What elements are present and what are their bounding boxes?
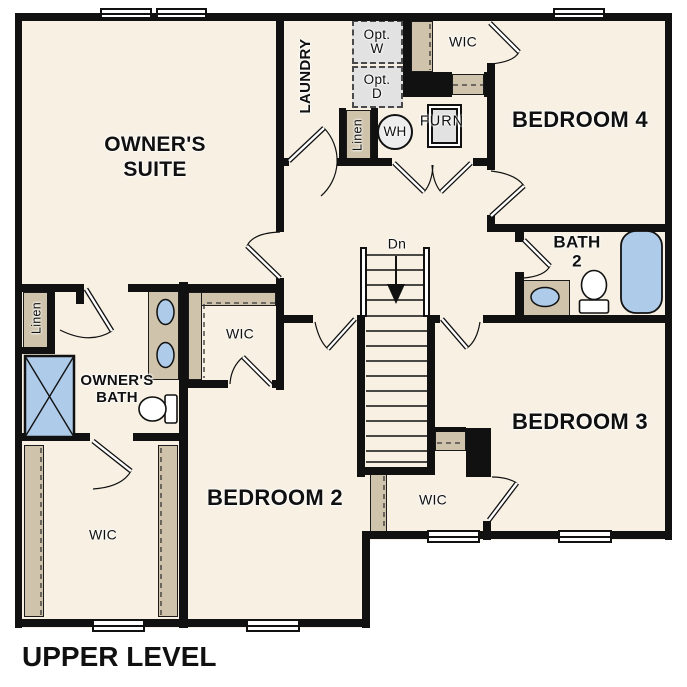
door-leaves: [86, 23, 550, 520]
door-swing-arcs: [60, 52, 550, 489]
room-label-owners-suite: OWNER'SSUITE: [104, 133, 206, 183]
label-stairs-down: Dn: [388, 236, 407, 253]
room-label-bath2: BATH2: [553, 233, 600, 270]
room-label-wic-bedroom4: WIC: [449, 34, 477, 51]
room-label-wic-bedroom3: WIC: [419, 492, 447, 509]
label-furnace: FURN: [420, 113, 464, 130]
stair-down-arrow: [387, 256, 405, 304]
room-label-wic-bedroom2: WIC: [226, 326, 254, 343]
shower: [25, 356, 74, 437]
room-label-bedroom3: BEDROOM 3: [512, 409, 648, 435]
room-label-bedroom4: BEDROOM 4: [512, 107, 648, 133]
sinks: [157, 288, 559, 368]
sink: [531, 288, 559, 307]
sink: [157, 300, 174, 325]
label-linen-laundry: Linen: [351, 119, 366, 151]
label-opt-dryer: Opt.D: [364, 73, 391, 101]
floor-plan: OWNER'SSUITE LAUNDRY Opt.W Opt.D Linen W…: [0, 0, 687, 687]
plan-graphics: [0, 0, 687, 687]
label-linen-owners: Linen: [30, 302, 45, 334]
label-opt-washer: Opt.W: [364, 28, 391, 56]
bathtub: [621, 231, 662, 313]
room-label-bedroom2: BEDROOM 2: [207, 485, 343, 511]
sink: [157, 343, 174, 368]
room-label-laundry: LAUNDRY: [297, 39, 315, 114]
room-label-wic-owners: WIC: [89, 527, 117, 544]
label-water-heater: WH: [383, 124, 406, 140]
room-label-owners-bath: OWNER'SBATH: [80, 372, 153, 407]
plan-title: UPPER LEVEL: [22, 641, 216, 673]
toilet-bath2: [580, 271, 609, 314]
